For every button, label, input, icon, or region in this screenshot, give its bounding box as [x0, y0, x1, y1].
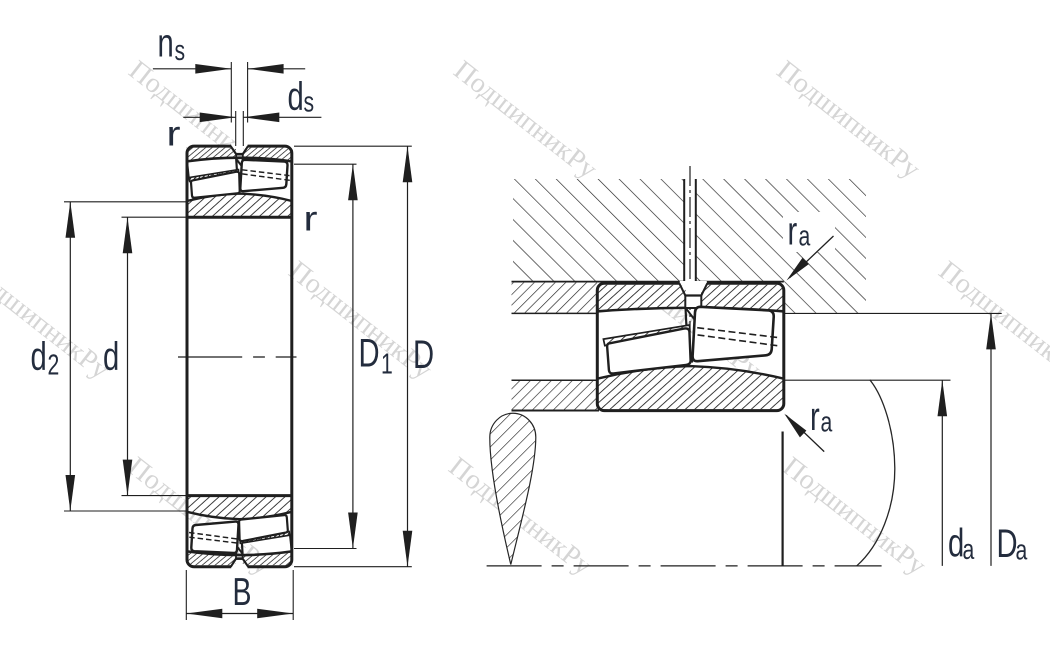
- svg-text:a: a: [1016, 534, 1029, 566]
- svg-text:r: r: [304, 200, 318, 239]
- svg-text:r: r: [167, 115, 181, 154]
- svg-text:a: a: [821, 406, 834, 438]
- svg-text:B: B: [233, 571, 252, 614]
- svg-text:s: s: [304, 86, 315, 118]
- svg-text:2: 2: [48, 349, 60, 381]
- svg-text:a: a: [963, 534, 976, 566]
- svg-text:D: D: [997, 522, 1018, 567]
- svg-text:d: d: [31, 335, 47, 380]
- svg-text:d: d: [103, 335, 119, 380]
- svg-text:1: 1: [381, 348, 393, 380]
- svg-text:a: a: [799, 220, 812, 252]
- svg-text:r: r: [810, 395, 820, 440]
- svg-text:s: s: [175, 35, 186, 67]
- svg-text:D: D: [413, 333, 434, 378]
- svg-text:d: d: [288, 74, 304, 119]
- svg-text:r: r: [788, 209, 798, 254]
- svg-text:D: D: [359, 331, 380, 376]
- svg-text:n: n: [158, 21, 174, 66]
